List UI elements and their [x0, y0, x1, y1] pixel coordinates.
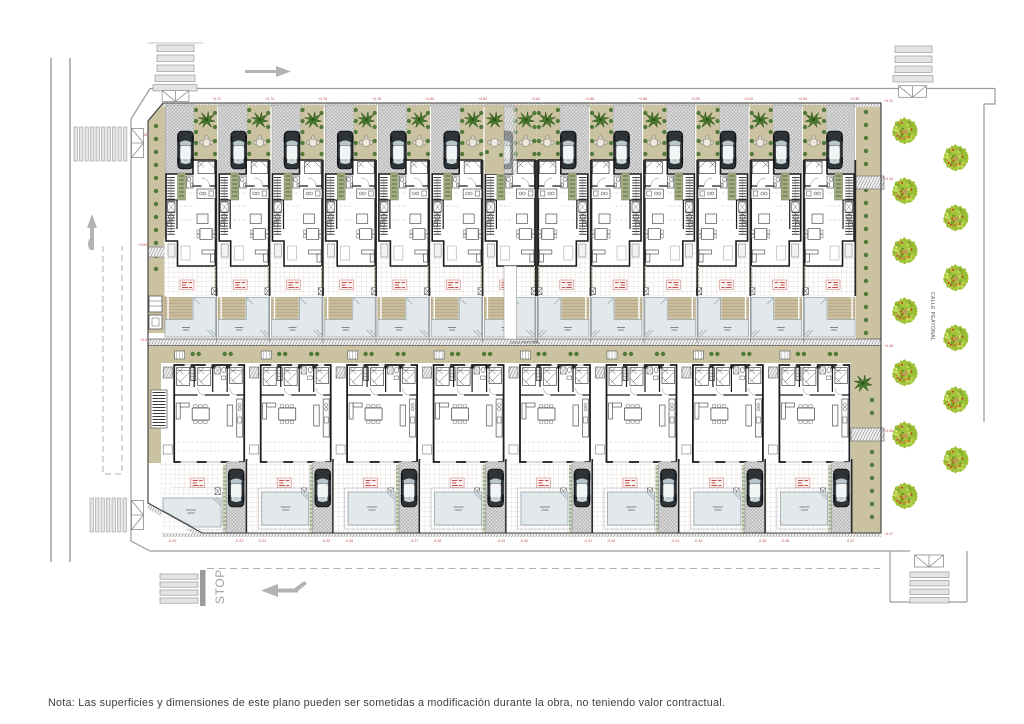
svg-text:-0.32: -0.32: [607, 539, 615, 543]
svg-text:-0.25: -0.25: [322, 539, 330, 543]
svg-text:+4.94: +4.94: [798, 97, 807, 101]
svg-text:-0.20: -0.20: [168, 539, 176, 543]
svg-text:STOP: STOP: [213, 569, 227, 604]
svg-text:+4.80: +4.80: [425, 97, 434, 101]
svg-text:-0.26: -0.26: [345, 539, 353, 543]
svg-text:+4.72: +4.72: [212, 97, 221, 101]
svg-text:-0.24: -0.24: [258, 539, 266, 543]
svg-text:+4.78: +4.78: [372, 97, 381, 101]
svg-text:-0.22: -0.22: [235, 539, 243, 543]
svg-text:-0.36: -0.36: [781, 539, 789, 543]
svg-text:+4.31: +4.31: [884, 99, 893, 103]
svg-text:CALLE PEATONAL: CALLE PEATONAL: [929, 292, 935, 341]
svg-text:-0.28: -0.28: [433, 539, 441, 543]
svg-text:-0.33: -0.33: [671, 539, 679, 543]
svg-text:+4.92: +4.92: [744, 97, 753, 101]
svg-text:-0.31: -0.31: [584, 539, 592, 543]
svg-text:+4.52: +4.52: [140, 338, 149, 342]
svg-text:+4.74: +4.74: [265, 97, 274, 101]
svg-text:+4.82: +4.82: [478, 97, 487, 101]
svg-text:+4.76: +4.76: [318, 97, 327, 101]
svg-text:-0.29: -0.29: [497, 539, 505, 543]
svg-text:CALLE PEATONAL: CALLE PEATONAL: [510, 341, 540, 345]
svg-text:+4.35: +4.35: [884, 344, 893, 348]
svg-text:-0.30: -0.30: [520, 539, 528, 543]
svg-text:+4.90: +4.90: [691, 97, 700, 101]
svg-text:+4.96: +4.96: [850, 97, 859, 101]
svg-text:-0.34: -0.34: [694, 539, 702, 543]
svg-text:-0.35: -0.35: [758, 539, 766, 543]
svg-text:+4.60: +4.60: [138, 243, 147, 247]
svg-text:-0.37: -0.37: [846, 539, 854, 543]
svg-text:+4.33: +4.33: [884, 177, 893, 181]
svg-text:+4.28: +4.28: [884, 429, 893, 433]
svg-text:+4.84: +4.84: [531, 97, 540, 101]
svg-text:-0.27: -0.27: [410, 539, 418, 543]
svg-text:+4.47: +4.47: [884, 532, 893, 536]
svg-text:+4.88: +4.88: [638, 97, 647, 101]
svg-text:+4.86: +4.86: [585, 97, 594, 101]
